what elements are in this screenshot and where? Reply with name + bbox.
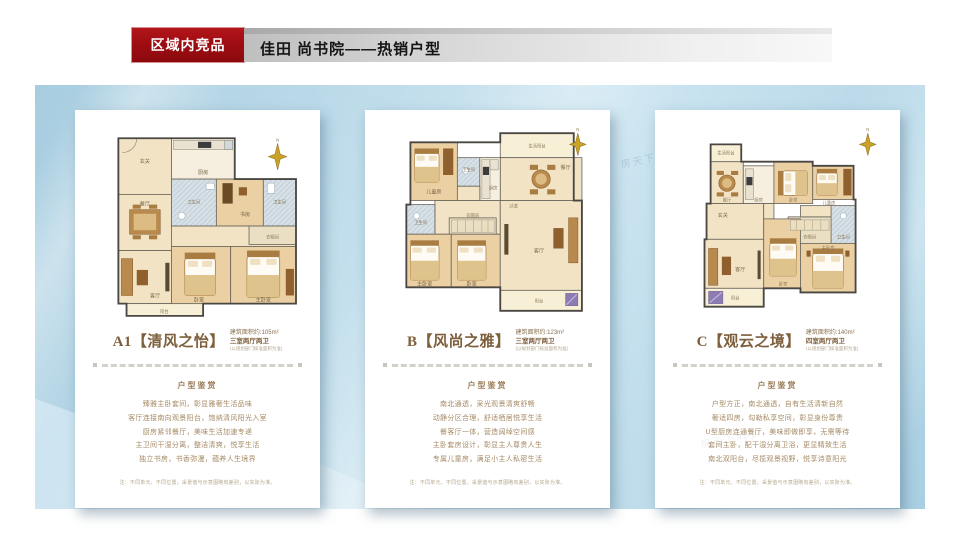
room-label-master: 主卧室 bbox=[417, 280, 432, 287]
ornamental-divider bbox=[383, 363, 592, 367]
plan-name-c: C【观云之境】 bbox=[697, 330, 801, 351]
feature-line: 臻雅主卧套间，彰显雅奢生活品味 bbox=[75, 398, 320, 412]
card-title-row-a1: A1【清风之怡】 建筑面积约:105m² 三室两厅两卫 (以规划部门核准面积为准… bbox=[75, 330, 320, 351]
section-title-a1: 户型鉴赏 bbox=[75, 380, 320, 391]
feature-list-b: 南北通透，采光观景清爽舒畅 动静分区合理，舒适栖居悦享生活 餐客厅一体，营造阔绰… bbox=[365, 398, 610, 466]
room-label-balcony: 阳台 bbox=[730, 295, 739, 302]
footnote-c: 注：不同单元、不同位置，采景值与示意图略有差别，以实际为准。 bbox=[655, 479, 900, 486]
feature-line: 客厅连接南向观景阳台，饱纳清风阳光入室 bbox=[75, 412, 320, 426]
plan-approval-c: (以规划部门核准面积为准) bbox=[806, 346, 859, 352]
plan-area-c: 建筑面积约:140m² bbox=[806, 330, 859, 338]
plan-specs-c: 建筑面积约:140m² 四室两厅两卫 (以规划部门核准面积为准) bbox=[806, 330, 859, 351]
floorplan-a1-drawing: N 玄关 厨房 餐厅 客厅 阳台 卫生间 书房 卫生间 衣帽间 卧室 主卧室 bbox=[95, 126, 301, 322]
room-label-study: 书房 bbox=[239, 211, 249, 218]
plan-approval-b: (以规划部门核准面积为准) bbox=[516, 346, 569, 352]
divider-dash bbox=[102, 364, 293, 367]
plan-specs-a1: 建筑面积约:105m² 三室两厅两卫 (以规划部门核准面积为准) bbox=[230, 330, 283, 351]
feature-line: 动静分区合理，舒适栖居悦享生活 bbox=[365, 412, 610, 426]
plan-wrap-a1: N 玄关 厨房 餐厅 客厅 阳台 卫生间 书房 卫生间 衣帽间 卧室 主卧室 bbox=[75, 110, 320, 322]
divider-square-right bbox=[878, 363, 882, 367]
feature-line: 户型方正，南北通透，自有生活清新自然 bbox=[655, 398, 900, 412]
room-label-kitchen: 厨房 bbox=[488, 184, 497, 191]
room-label-dining: 餐厅 bbox=[722, 197, 731, 204]
room-label-bed: 卧室 bbox=[778, 280, 787, 287]
floorplan-card-b: N 生活阳台 餐厅 儿童房 卫生间 厨房 卫生间 衣帽间 过道 主卧室 卧室 客… bbox=[365, 110, 610, 508]
page-title: 佳田 尚书院——热销户型 bbox=[244, 38, 441, 59]
room-label-closet: 衣帽间 bbox=[266, 233, 279, 240]
room-label-svc-balcony: 生活阳台 bbox=[528, 142, 545, 149]
room-label-child: 儿童房 bbox=[426, 188, 441, 195]
room-label-master: 主卧室 bbox=[255, 297, 270, 304]
feature-line: 南北双阳台，尽揽观景视野，悦享诗意阳光 bbox=[655, 453, 900, 467]
divider-square-left bbox=[383, 363, 387, 367]
room-label-balcony: 阳台 bbox=[534, 298, 543, 305]
floorplan-c-drawing: N 生活阳台 餐厅 厨房 卧室 儿童房 卫生间 衣帽间 玄关 客厅 阳台 卧室 … bbox=[675, 126, 881, 322]
room-label-bath2: 卫生间 bbox=[414, 219, 427, 226]
plan-specs-b: 建筑面积约:123m² 三室两厅两卫 (以规划部门核准面积为准) bbox=[516, 330, 569, 351]
plan-approval-a1: (以规划部门核准面积为准) bbox=[230, 346, 283, 352]
floorplan-card-c: N 生活阳台 餐厅 厨房 卧室 儿童房 卫生间 衣帽间 玄关 客厅 阳台 卧室 … bbox=[655, 110, 900, 508]
feature-list-c: 户型方正，南北通透，自有生活清新自然 奢适四房，勾勒私享空间，彰显身份尊贵 U型… bbox=[655, 398, 900, 466]
feature-line: 主卫间干湿分离，整洁清爽，悦享生活 bbox=[75, 439, 320, 453]
room-label-closet: 衣帽间 bbox=[466, 212, 479, 219]
room-label-bath1: 卫生间 bbox=[187, 199, 200, 206]
compass-icon: N bbox=[859, 127, 875, 156]
plan-layout-a1: 三室两厅两卫 bbox=[230, 338, 283, 346]
divider-square-left bbox=[673, 363, 677, 367]
footnote-a1: 注：不同单元、不同位置，采景值与示意图略有差别，以实际为准。 bbox=[75, 479, 320, 486]
feature-line: 南北通透，采光观景清爽舒畅 bbox=[365, 398, 610, 412]
room-label-hall: 玄关 bbox=[717, 212, 727, 219]
room-label-living: 客厅 bbox=[150, 293, 160, 300]
feature-line: 奢适四房，勾勒私享空间，彰显身份尊贵 bbox=[655, 412, 900, 426]
floorplan-b-drawing: N 生活阳台 餐厅 儿童房 卫生间 厨房 卫生间 衣帽间 过道 主卧室 卧室 客… bbox=[385, 126, 591, 322]
room-label-closet: 衣帽间 bbox=[803, 233, 816, 240]
plan-area-b: 建筑面积约:123m² bbox=[516, 330, 569, 338]
room-label-bed: 卧室 bbox=[466, 280, 476, 287]
section-tag-label: 区域内竞品 bbox=[151, 35, 226, 55]
plan-wrap-b: N 生活阳台 餐厅 儿童房 卫生间 厨房 卫生间 衣帽间 过道 主卧室 卧室 客… bbox=[365, 110, 610, 322]
compass-n-label: N bbox=[866, 127, 869, 132]
feature-list-a1: 臻雅主卧套间，彰显雅奢生活品味 客厅连接南向观景阳台，饱纳清风阳光入室 厨房紧邻… bbox=[75, 398, 320, 466]
room-label-hall: 过道 bbox=[509, 203, 518, 210]
room-label-dining: 餐厅 bbox=[139, 201, 149, 208]
divider-square-right bbox=[298, 363, 302, 367]
feature-line: 专属儿童房，满足小主人私密生活 bbox=[365, 453, 610, 467]
compass-n-label: N bbox=[276, 137, 279, 142]
card-title-row-c: C【观云之境】 建筑面积约:140m² 四室两厅两卫 (以规划部门核准面积为准) bbox=[655, 330, 900, 351]
room-label-svc-balcony: 生活阳台 bbox=[717, 150, 734, 157]
plan-layout-c: 四室两厅两卫 bbox=[806, 338, 859, 346]
plan-layout-b: 三室两厅两卫 bbox=[516, 338, 569, 346]
room-label-dining: 餐厅 bbox=[560, 164, 570, 171]
room-label-kitchen: 厨房 bbox=[754, 197, 763, 204]
plan-name-b: B【风尚之雅】 bbox=[407, 330, 511, 351]
plan-name-a1: A1【清风之怡】 bbox=[113, 330, 225, 351]
section-tag: 区域内竞品 bbox=[132, 28, 244, 62]
section-title-c: 户型鉴赏 bbox=[655, 380, 900, 391]
room-label-master: 主卧室 bbox=[821, 245, 835, 252]
room-label-bath: 卫生间 bbox=[836, 233, 849, 240]
card-title-row-b: B【风尚之雅】 建筑面积约:123m² 三室两厅两卫 (以规划部门核准面积为准) bbox=[365, 330, 610, 351]
feature-line: 独立书房，书香弥漫，蕴养人生境界 bbox=[75, 453, 320, 467]
room-label-entry: 玄关 bbox=[139, 158, 149, 165]
divider-dash bbox=[392, 364, 583, 367]
room-label-living: 客厅 bbox=[735, 266, 745, 273]
room-label-living: 客厅 bbox=[533, 248, 543, 255]
room-label-bed-top: 卧室 bbox=[789, 197, 798, 204]
room-label-kitchen: 厨房 bbox=[198, 169, 208, 176]
ornamental-divider bbox=[93, 363, 302, 367]
feature-line: 厨房紧邻餐厅，美味生活加速专递 bbox=[75, 426, 320, 440]
compass-n-label: N bbox=[576, 127, 579, 132]
room-label-bath2: 卫生间 bbox=[273, 199, 286, 206]
plan-area-a1: 建筑面积约:105m² bbox=[230, 330, 283, 338]
divider-dash bbox=[682, 364, 873, 367]
feature-line: U型厨房连通餐厅，美味即做即享，无需等待 bbox=[655, 426, 900, 440]
divider-square-left bbox=[93, 363, 97, 367]
feature-line: 套间主卧，配干湿分离卫浴，更显精致生活 bbox=[655, 439, 900, 453]
slide-page: 区域内竞品 佳田 尚书院——热销户型 房天下app 房天下app 房天下app … bbox=[0, 0, 960, 540]
title-bar: 佳田 尚书院——热销户型 bbox=[244, 28, 832, 62]
room-label-balcony: 阳台 bbox=[160, 308, 169, 315]
room-label-child: 儿童房 bbox=[822, 200, 835, 207]
header: 区域内竞品 佳田 尚书院——热销户型 bbox=[132, 28, 832, 62]
feature-line: 主卧套房设计，彰显主人尊贵人生 bbox=[365, 439, 610, 453]
compass-icon: N bbox=[268, 137, 286, 170]
feature-line: 餐客厅一体，营造阔绰空间感 bbox=[365, 426, 610, 440]
ornamental-divider bbox=[673, 363, 882, 367]
floorplan-card-a1: N 玄关 厨房 餐厅 客厅 阳台 卫生间 书房 卫生间 衣帽间 卧室 主卧室 A bbox=[75, 110, 320, 508]
section-title-b: 户型鉴赏 bbox=[365, 380, 610, 391]
divider-square-right bbox=[588, 363, 592, 367]
footnote-b: 注：不同单元、不同位置，采景值与示意图略有差别，以实际为准。 bbox=[365, 479, 610, 486]
title-bar-main: 佳田 尚书院——热销户型 bbox=[244, 34, 832, 62]
room-label-bed: 卧室 bbox=[193, 297, 203, 304]
plan-wrap-c: N 生活阳台 餐厅 厨房 卧室 儿童房 卫生间 衣帽间 玄关 客厅 阳台 卧室 … bbox=[655, 110, 900, 322]
room-label-bath1: 卫生间 bbox=[462, 166, 475, 173]
